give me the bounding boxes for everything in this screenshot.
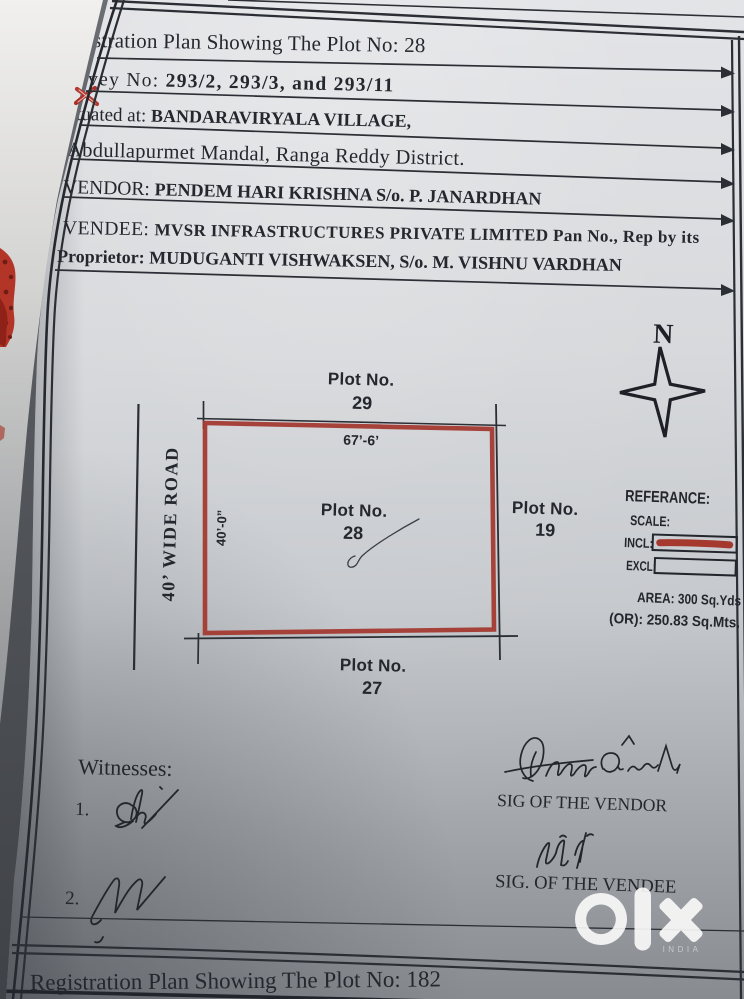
svg-text:N: N <box>653 319 674 351</box>
svg-text:SCALE:: SCALE: <box>630 512 671 529</box>
svg-text:Plot No.: Plot No. <box>328 369 395 390</box>
svg-text:19: 19 <box>535 520 556 541</box>
svg-text:27: 27 <box>362 678 382 698</box>
svg-text:40’ WIDE ROAD: 40’ WIDE ROAD <box>158 446 182 602</box>
svg-text:29: 29 <box>352 393 372 413</box>
svg-text:EXCL:: EXCL: <box>626 558 657 574</box>
svg-text:1.: 1. <box>75 799 90 820</box>
svg-text:REFERANCE:: REFERANCE: <box>625 488 711 508</box>
svg-text:28: 28 <box>343 523 364 543</box>
svg-text:Witnesses:: Witnesses: <box>78 754 173 781</box>
svg-text:INCL:: INCL: <box>624 535 654 551</box>
svg-text:Plot No.: Plot No. <box>340 655 407 675</box>
svg-text:40’-0”: 40’-0” <box>213 510 229 547</box>
svg-text:Plot No.: Plot No. <box>321 500 388 521</box>
svg-text:INDIA: INDIA <box>663 945 702 954</box>
svg-text:Plot No.: Plot No. <box>512 498 579 519</box>
svg-text:67’-6’: 67’-6’ <box>343 432 379 449</box>
svg-text:Registration Plan Showing The: Registration Plan Showing The Plot No: 1… <box>30 966 441 995</box>
svg-text:2.: 2. <box>65 888 80 909</box>
